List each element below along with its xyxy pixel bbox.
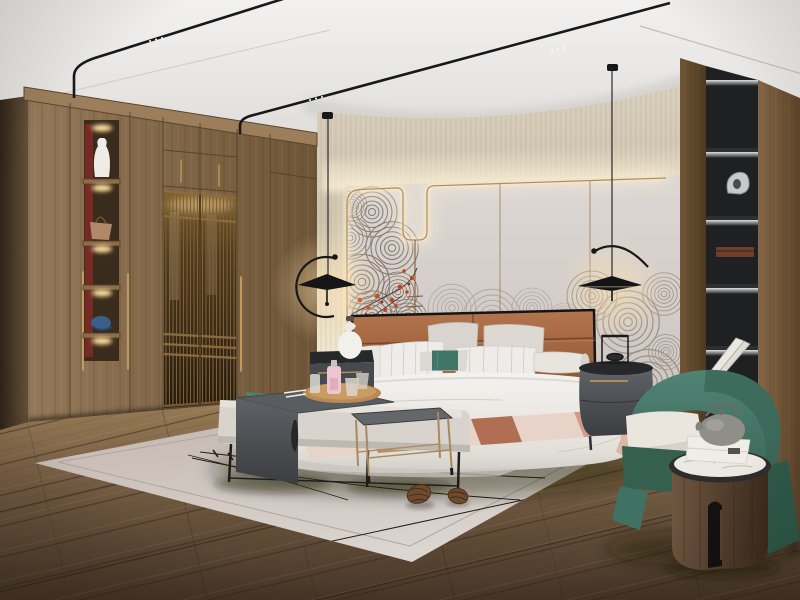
vignette-overlay [0,0,800,600]
bedroom-scene [0,0,800,600]
bedroom-photo [0,0,800,600]
